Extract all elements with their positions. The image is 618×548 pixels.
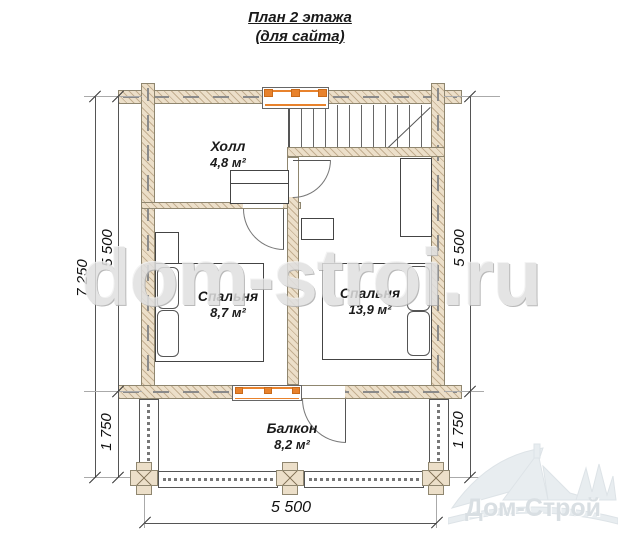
room-area: 8,7 м²: [170, 305, 286, 321]
room-name: Спальня: [312, 285, 428, 302]
extension-line: [444, 391, 484, 392]
dimension-label-left-rooms: 5 500: [99, 218, 115, 278]
window-pane: [291, 89, 300, 97]
window-frame-line: [265, 104, 326, 106]
door-arc-bedroom-small: [243, 209, 284, 250]
log-post: [276, 470, 304, 486]
floor-plan-canvas: План 2 этажа (для сайта): [0, 0, 618, 548]
balcony-rail-bottom-left: [158, 471, 278, 488]
room-label-hall: Холл 4,8 м²: [178, 138, 278, 171]
dimension-label-left-total: 7 250: [74, 248, 90, 308]
dimension-label-right-balcony: 1 750: [450, 400, 466, 460]
wall-left: [141, 83, 155, 406]
dimension-label-left-balcony: 1 750: [98, 402, 114, 462]
wardrobe-divider: [231, 183, 288, 184]
window-frame-line: [235, 398, 299, 400]
balcony-rail-bottom-right: [304, 471, 424, 488]
room-name: Балкон: [240, 420, 344, 437]
dimension-line-left-total: [95, 97, 96, 478]
dimension-line-left-inner: [118, 97, 119, 478]
room-area: 4,8 м²: [178, 155, 278, 171]
window-pane: [292, 387, 300, 394]
extension-line: [84, 477, 132, 478]
title-line-1: План 2 этажа: [248, 9, 352, 26]
company-logo: Дом-Строй: [448, 438, 618, 543]
extension-line: [444, 96, 500, 97]
door-opening-balcony: [302, 386, 345, 398]
dimension-label-bottom-width: 5 500: [241, 499, 341, 517]
room-label-bedroom-large: Спальня 13,9 м²: [312, 285, 428, 318]
logo-house-icon: [448, 438, 618, 538]
wardrobe-large-bedroom: [400, 158, 432, 237]
room-area: 8,2 м²: [240, 437, 344, 453]
extension-line: [84, 391, 142, 392]
room-name: Холл: [178, 138, 278, 155]
log-post: [422, 470, 450, 486]
log-post: [130, 470, 158, 486]
door-arc-bedroom-large: [293, 160, 331, 198]
dimension-label-right-rooms: 5 500: [451, 218, 467, 278]
wall-right: [431, 83, 445, 406]
window-top-wall: [262, 87, 329, 109]
room-label-bedroom-small: Спальня 8,7 м²: [170, 288, 286, 321]
wall-stairs-bottom: [287, 147, 445, 157]
title-line-2: (для сайта): [255, 28, 344, 45]
drawing-title: План 2 этажа (для сайта): [190, 8, 410, 46]
shelf-large-bedroom: [301, 218, 334, 240]
nightstand: [155, 232, 179, 265]
room-label-balcony: Балкон 8,2 м²: [240, 420, 344, 453]
window-pane: [318, 89, 327, 97]
window-pane: [264, 387, 272, 394]
window-pane: [264, 89, 273, 97]
room-name: Спальня: [170, 288, 286, 305]
logo-text: Дом-Строй: [448, 494, 618, 523]
window-pane: [235, 387, 243, 394]
window-balcony-wall: [232, 385, 302, 401]
hall-wardrobe: [230, 170, 289, 204]
dimension-line-right: [470, 97, 471, 478]
dimension-line-bottom: [145, 523, 437, 524]
room-area: 13,9 м²: [312, 302, 428, 318]
